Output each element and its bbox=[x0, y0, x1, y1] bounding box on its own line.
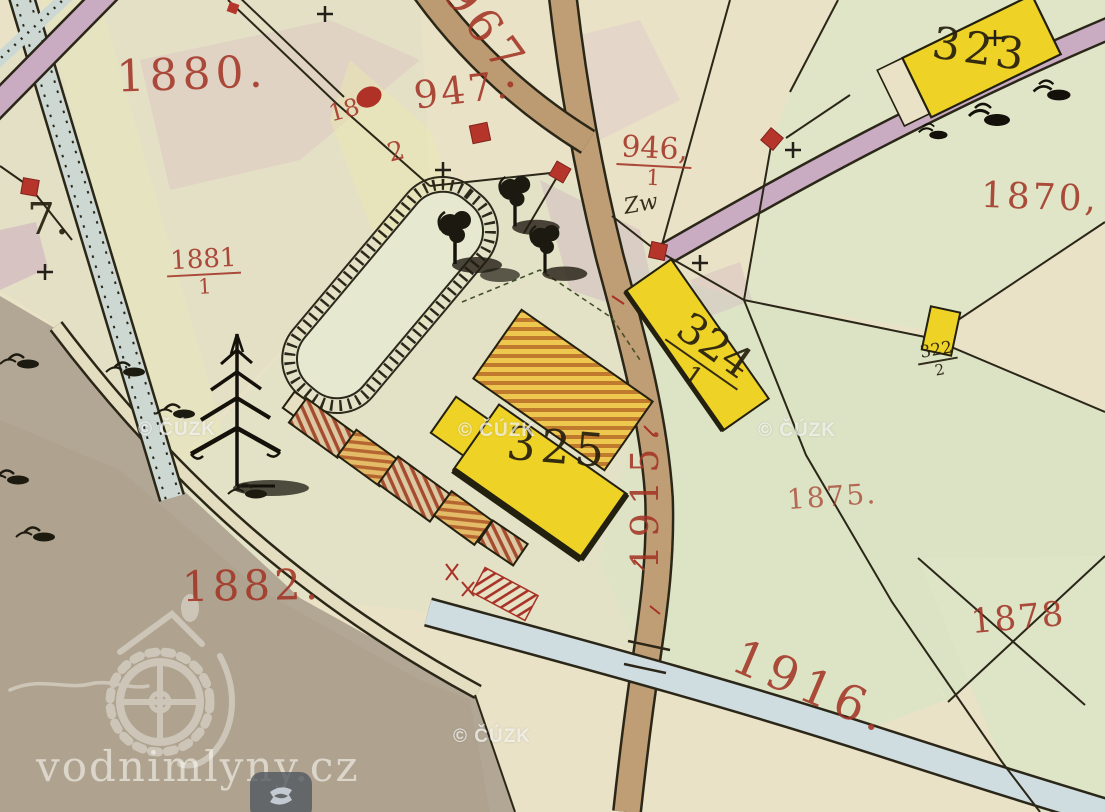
parcel-label-1870: 1870, bbox=[980, 178, 1099, 218]
parcel-label-946: 946, 1 bbox=[615, 132, 693, 192]
parcel-label-1881: 1881 1 bbox=[166, 245, 243, 300]
building-label-323: 323 bbox=[929, 22, 1030, 79]
parcel-label-947: 947. bbox=[412, 65, 513, 114]
parcel-label-1882: 1882. bbox=[182, 564, 323, 608]
parcel-label-1880: 1880. bbox=[116, 50, 268, 99]
parcel-label-1875: 1875. bbox=[786, 480, 878, 514]
building-label-7: 7. bbox=[27, 198, 69, 242]
cadastral-map-view: 1880. 967. 947. 18 2 946, 1 Zw 323 1870,… bbox=[0, 0, 1105, 812]
map-artwork bbox=[0, 0, 1105, 812]
map-badge bbox=[250, 772, 312, 812]
cuzk-watermark-4: © ČÚZK bbox=[453, 726, 531, 748]
cuzk-watermark-3: © ČÚZK bbox=[758, 420, 836, 442]
cuzk-watermark-2: © ČÚZK bbox=[458, 420, 536, 442]
map-badge-s-icon bbox=[266, 780, 296, 812]
parcel-label-1878: 1878 bbox=[969, 597, 1066, 639]
parcel-label-18-num: 18 bbox=[326, 94, 362, 125]
parcel-label-1915: 1915. bbox=[626, 421, 664, 570]
note-label-zw: Zw bbox=[622, 191, 659, 219]
cuzk-watermark-1: © ČÚZK bbox=[138, 419, 216, 441]
building-label-322: 322 2 bbox=[915, 339, 961, 381]
